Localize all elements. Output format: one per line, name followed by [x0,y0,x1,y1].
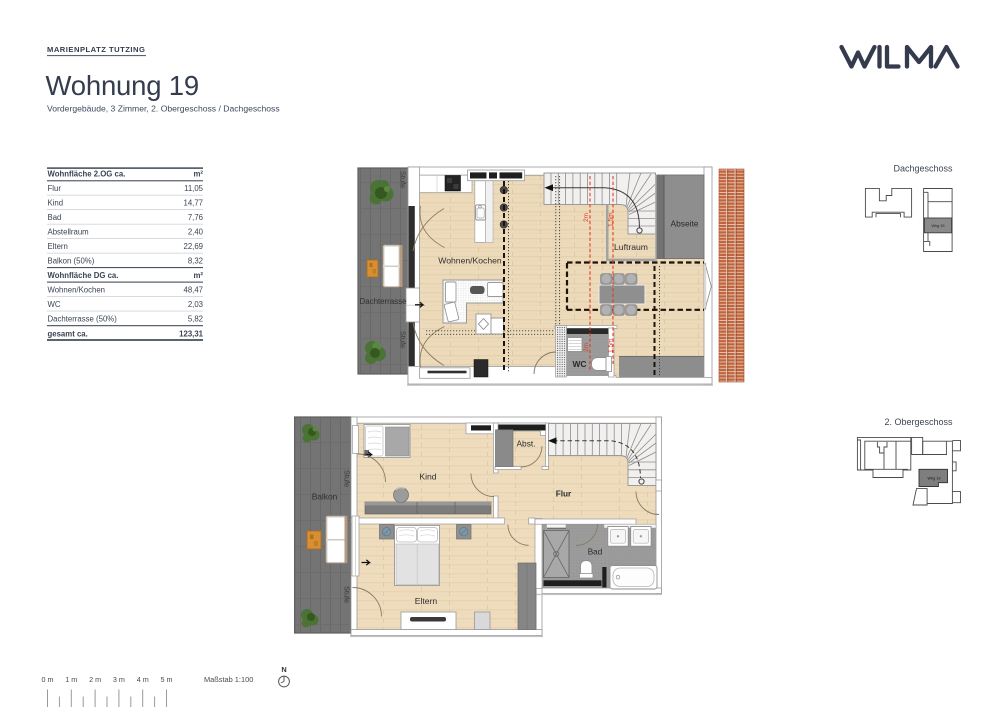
svg-text:48,47: 48,47 [183,285,203,294]
svg-text:2m: 2m [583,212,590,222]
svg-text:4 m: 4 m [137,675,149,684]
svg-text:Eltern: Eltern [48,242,68,251]
svg-text:2,40: 2,40 [188,227,204,236]
svg-text:11,05: 11,05 [184,184,204,193]
svg-text:Balkon (50%): Balkon (50%) [48,256,95,265]
svg-text:5 m: 5 m [161,675,173,684]
svg-text:14,77: 14,77 [183,198,203,207]
svg-text:2,03: 2,03 [188,300,203,309]
svg-text:2. Obergeschoss: 2. Obergeschoss [884,417,953,427]
svg-text:Vordergebäude, 3 Zimmer, 2. Ob: Vordergebäude, 3 Zimmer, 2. Obergeschoss… [47,104,280,114]
svg-text:Eltern: Eltern [415,596,438,606]
svg-text:Wohnen/Kochen: Wohnen/Kochen [48,285,106,294]
svg-text:123,31: 123,31 [179,329,204,338]
svg-text:1 m: 1 m [65,675,77,684]
svg-text:Whg 19: Whg 19 [931,224,944,228]
svg-text:Stufe: Stufe [399,171,408,188]
svg-text:Abseite: Abseite [671,219,699,229]
svg-text:Whg 19: Whg 19 [927,477,940,481]
svg-text:Wohnfläche 2.OG ca.: Wohnfläche 2.OG ca. [48,170,126,179]
svg-text:Bad: Bad [48,213,62,222]
svg-text:N: N [281,665,286,674]
svg-text:8,32: 8,32 [188,256,203,265]
svg-text:Dachterrasse: Dachterrasse [360,297,408,306]
svg-text:Kind: Kind [419,472,436,482]
svg-text:WC: WC [48,300,61,309]
svg-text:7,76: 7,76 [188,213,203,222]
svg-text:m²: m² [193,170,203,179]
svg-text:Wohnen/Kochen: Wohnen/Kochen [438,256,502,266]
svg-text:MARIENPLATZ TUTZING: MARIENPLATZ TUTZING [47,45,145,54]
svg-text:Flur: Flur [556,490,572,499]
svg-text:Bad: Bad [588,548,603,557]
svg-text:Wohnung 19: Wohnung 19 [46,70,199,101]
svg-text:1,5m: 1,5m [608,338,615,353]
svg-text:2m: 2m [583,342,590,352]
svg-text:Stufe: Stufe [343,470,352,487]
svg-text:gesamt ca.: gesamt ca. [48,329,88,338]
svg-text:5,82: 5,82 [188,314,203,323]
svg-text:Abstellraum: Abstellraum [48,227,89,236]
svg-text:Luftraum: Luftraum [614,242,648,252]
svg-text:0 m: 0 m [42,675,54,684]
svg-text:Abst.: Abst. [516,439,535,449]
svg-text:2 m: 2 m [89,675,101,684]
svg-text:Dachterrasse (50%): Dachterrasse (50%) [48,314,118,323]
svg-text:Kind: Kind [48,198,64,207]
svg-text:Dachgeschoss: Dachgeschoss [893,164,953,174]
svg-text:Maßstab 1:100: Maßstab 1:100 [204,675,253,684]
svg-text:Wohnfläche DG ca.: Wohnfläche DG ca. [48,271,119,280]
svg-text:Balkon: Balkon [312,492,338,502]
svg-text:WC: WC [573,359,587,369]
svg-text:3 m: 3 m [113,675,125,684]
svg-text:22,69: 22,69 [183,242,203,251]
svg-text:Flur: Flur [48,184,62,193]
svg-text:Stufe: Stufe [399,331,408,348]
svg-text:m²: m² [193,271,203,280]
svg-text:1,5m: 1,5m [608,212,615,227]
svg-text:Stufe: Stufe [343,586,352,603]
